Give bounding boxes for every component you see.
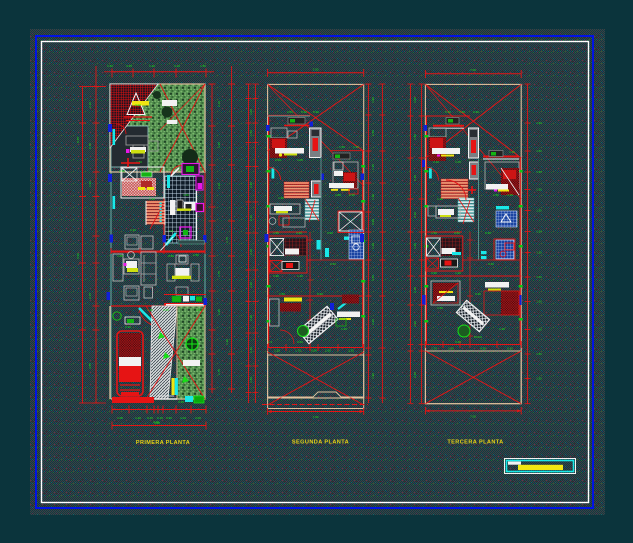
svg-text:0.90: 0.90 [313,110,319,114]
svg-text:3.10: 3.10 [174,64,180,68]
svg-text:0.90: 0.90 [473,110,479,114]
svg-text:1.20: 1.20 [135,416,141,420]
svg-text:1.20: 1.20 [88,181,92,187]
svg-text:1.50: 1.50 [183,193,189,197]
svg-text:1.05: 1.05 [117,416,123,420]
svg-text:1.35: 1.35 [348,349,354,353]
svg-text:1.50: 1.50 [249,130,253,136]
svg-text:2.10: 2.10 [217,101,221,107]
svg-text:2.10: 2.10 [217,183,221,189]
svg-text:1.90: 1.90 [371,373,375,379]
svg-text:1.00: 1.00 [371,97,375,103]
svg-text:1.05: 1.05 [455,160,461,164]
svg-text:1.50: 1.50 [493,193,499,197]
svg-text:0.90: 0.90 [125,325,131,329]
svg-text:1.50: 1.50 [287,110,293,114]
svg-text:2.20: 2.20 [413,321,417,327]
svg-text:1.50: 1.50 [371,275,375,281]
svg-text:PRIMERA PLANTA: PRIMERA PLANTA [136,440,190,446]
svg-text:1.50: 1.50 [193,253,199,257]
svg-text:2.20: 2.20 [249,282,253,288]
svg-text:1.50: 1.50 [339,145,345,149]
svg-text:3.55: 3.55 [88,363,92,369]
svg-text:0.90: 0.90 [119,169,125,173]
svg-text:1.50: 1.50 [200,64,206,68]
svg-text:2.00: 2.00 [163,308,169,312]
svg-text:1.20: 1.20 [147,308,153,312]
svg-text:1.50: 1.50 [536,149,542,153]
svg-text:1.20: 1.20 [455,271,461,275]
svg-text:0.60: 0.60 [301,110,307,114]
svg-text:1.50: 1.50 [107,64,113,68]
svg-text:1.75: 1.75 [217,369,221,375]
svg-text:1.20: 1.20 [297,274,303,278]
svg-text:0.15: 0.15 [507,347,513,351]
svg-text:0.90: 0.90 [317,292,323,296]
svg-text:2.60: 2.60 [413,372,417,378]
svg-text:0.60: 0.60 [297,340,303,344]
svg-text:2.20: 2.20 [371,319,375,325]
svg-text:0.60: 0.60 [296,231,302,235]
svg-text:1.50: 1.50 [536,300,542,304]
svg-text:0.90: 0.90 [135,103,141,107]
svg-text:0.95: 0.95 [311,349,317,353]
svg-text:0.45: 0.45 [178,400,184,404]
svg-text:1.20: 1.20 [371,243,375,249]
svg-text:1.35: 1.35 [274,349,280,353]
svg-text:1.50: 1.50 [536,230,542,234]
svg-text:1.60: 1.60 [413,243,417,249]
svg-text:0.9: 0.9 [169,229,174,233]
svg-text:1.50: 1.50 [413,134,417,140]
svg-text:4.35: 4.35 [126,64,132,68]
svg-text:1.20: 1.20 [437,197,443,201]
svg-text:7.00: 7.00 [313,68,319,72]
svg-text:2.00: 2.00 [195,416,201,420]
svg-text:1.50: 1.50 [536,188,542,192]
svg-text:0.90: 0.90 [371,219,375,225]
svg-text:1.50: 1.50 [536,328,542,332]
svg-text:4.30: 4.30 [480,347,486,351]
svg-text:1.50: 1.50 [448,347,454,351]
svg-text:1.20: 1.20 [278,196,284,200]
svg-text:1.05: 1.05 [297,158,303,162]
svg-text:0.60: 0.60 [330,262,336,266]
svg-text:1.50: 1.50 [536,121,542,125]
svg-text:1.50: 1.50 [536,352,542,356]
svg-text:1.35: 1.35 [371,164,375,170]
svg-text:2.15: 2.15 [88,293,92,299]
svg-text:2.48: 2.48 [249,182,253,188]
svg-text:1.50: 1.50 [536,209,542,213]
svg-text:1.50: 1.50 [279,292,285,296]
svg-text:1.20: 1.20 [371,194,375,200]
svg-text:SEGUNDA PLANTA: SEGUNDA PLANTA [292,440,349,446]
svg-text:1.75: 1.75 [217,271,221,277]
svg-text:2.10: 2.10 [413,212,417,218]
svg-text:0.60: 0.60 [488,262,494,266]
svg-text:1.50: 1.50 [335,193,341,197]
svg-text:0.90: 0.90 [327,231,333,235]
svg-text:0.60: 0.60 [196,308,202,312]
svg-text:0.60: 0.60 [454,231,460,235]
svg-text:1.50: 1.50 [325,349,331,353]
svg-text:1.50: 1.50 [445,110,451,114]
svg-text:1.4: 1.4 [141,169,146,173]
svg-text:1.00: 1.00 [413,97,417,103]
svg-text:0.80: 0.80 [168,254,174,258]
svg-text:2.10: 2.10 [275,158,281,162]
svg-text:1.70: 1.70 [295,349,301,353]
svg-text:1.95: 1.95 [217,309,221,315]
svg-text:1.20: 1.20 [149,197,155,201]
svg-text:0.90: 0.90 [431,271,437,275]
svg-text:1.35: 1.35 [509,150,515,154]
svg-text:0.90: 0.90 [166,416,172,420]
svg-text:7.00: 7.00 [470,415,476,419]
svg-text:0.95: 0.95 [507,193,513,197]
svg-text:2.20: 2.20 [249,315,253,321]
svg-text:1.95: 1.95 [217,142,221,148]
svg-text:0.90: 0.90 [485,231,491,235]
svg-text:4.00: 4.00 [154,421,160,425]
svg-text:2.48: 2.48 [413,175,417,181]
svg-text:2.10: 2.10 [130,228,136,232]
svg-text:1.50: 1.50 [536,170,542,174]
svg-text:2.60: 2.60 [249,249,253,255]
svg-text:1.50: 1.50 [536,251,542,255]
svg-text:1.50: 1.50 [371,130,375,136]
svg-text:7.00: 7.00 [313,415,319,419]
svg-text:7.00: 7.00 [470,68,476,72]
svg-text:2.10: 2.10 [88,102,92,108]
svg-text:0.90: 0.90 [273,274,279,278]
svg-text:0.15: 0.15 [157,416,163,420]
svg-text:1.70: 1.70 [431,347,437,351]
svg-text:1.50: 1.50 [536,275,542,279]
svg-text:1.50: 1.50 [273,231,279,235]
svg-text:6.30: 6.30 [76,253,80,259]
svg-text:1.20: 1.20 [499,327,505,331]
svg-text:0.90: 0.90 [475,292,481,296]
svg-text:2.45: 2.45 [88,143,92,149]
svg-text:1.35: 1.35 [353,145,359,149]
svg-text:1.50: 1.50 [117,254,123,258]
svg-text:0.95: 0.95 [349,193,355,197]
svg-text:PASO: PASO [474,335,483,339]
svg-text:0.60: 0.60 [459,110,465,114]
svg-text:2.10: 2.10 [433,160,439,164]
svg-text:1.80: 1.80 [249,377,253,383]
svg-text:1.40: 1.40 [249,347,253,353]
svg-text:8.45: 8.45 [76,137,80,143]
svg-text:1.75: 1.75 [225,237,229,243]
svg-text:1.20: 1.20 [149,64,155,68]
svg-text:0.60: 0.60 [455,340,461,344]
svg-text:1.3: 1.3 [268,340,273,344]
svg-text:1.20: 1.20 [225,339,229,345]
svg-text:1.50: 1.50 [431,231,437,235]
svg-text:1.04: 1.04 [180,416,186,420]
svg-text:1.00: 1.00 [249,109,253,115]
svg-text:2.10: 2.10 [249,215,253,221]
svg-text:1.20: 1.20 [341,327,347,331]
svg-text:TERCERA PLANTA: TERCERA PLANTA [447,440,503,446]
svg-text:1.50: 1.50 [437,306,443,310]
svg-text:2.20: 2.20 [413,287,417,293]
svg-text:1.50: 1.50 [536,377,542,381]
